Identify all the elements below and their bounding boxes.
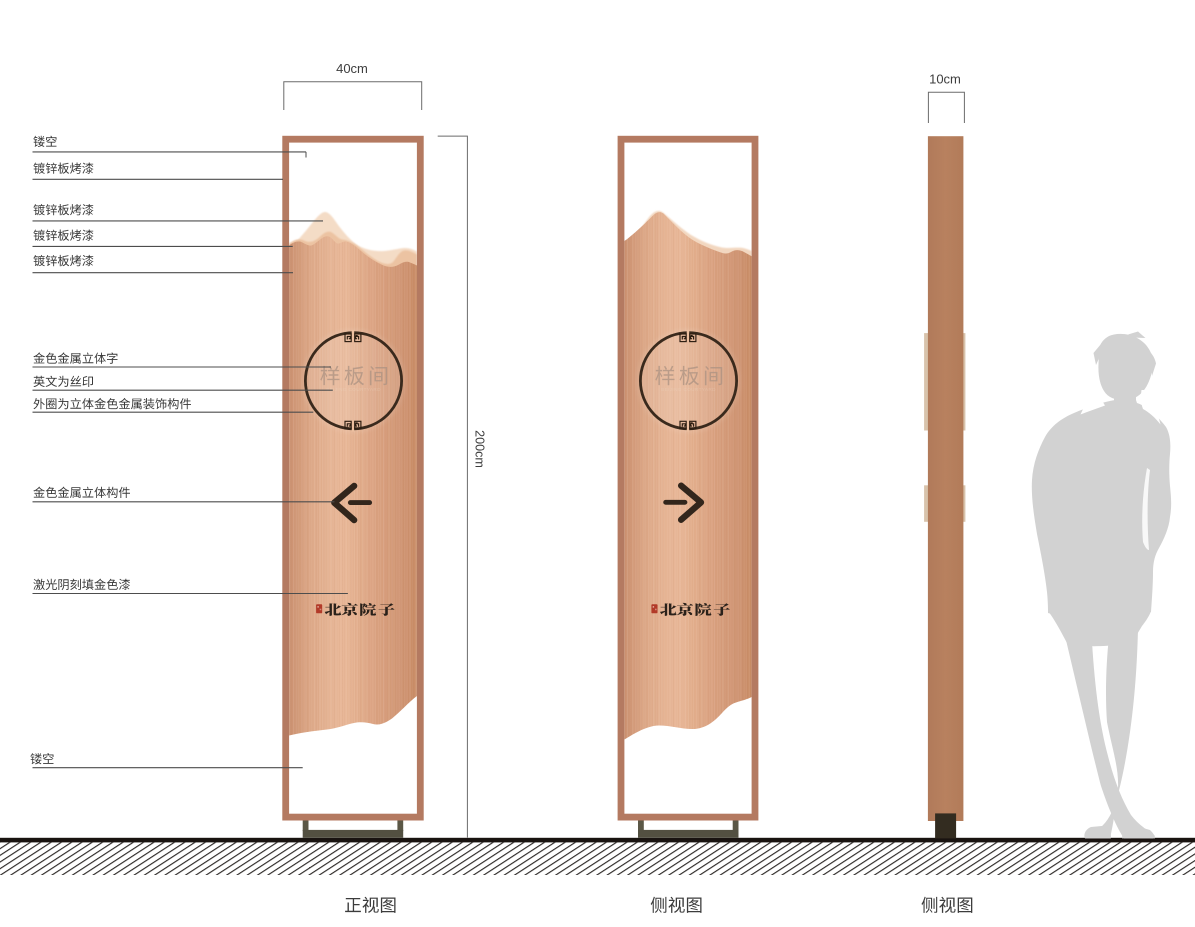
- svg-text:40cm: 40cm: [336, 61, 368, 76]
- svg-text:10cm: 10cm: [929, 72, 961, 87]
- svg-text:200cm: 200cm: [473, 430, 487, 468]
